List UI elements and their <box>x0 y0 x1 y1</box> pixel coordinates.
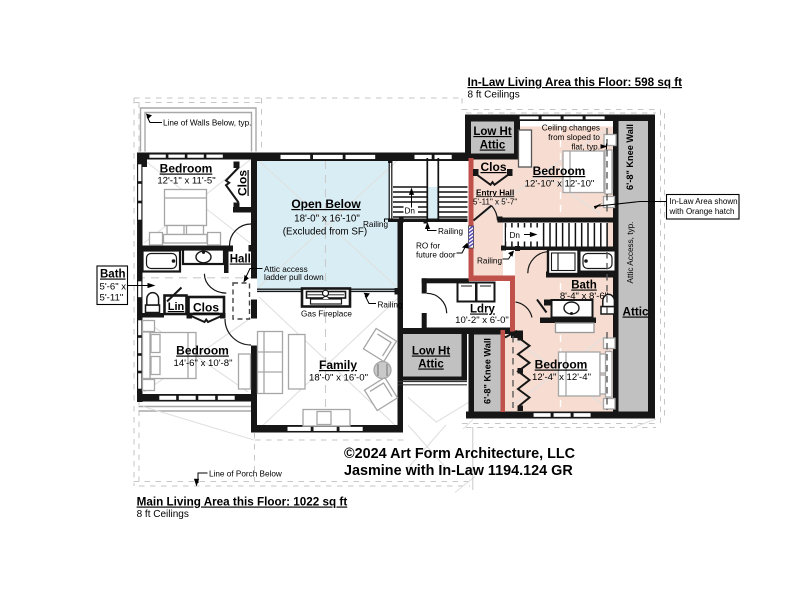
svg-text:5'-11" x 5'-7": 5'-11" x 5'-7" <box>473 197 517 206</box>
svg-text:Railing: Railing <box>378 301 403 310</box>
svg-text:Bedroom: Bedroom <box>160 162 213 176</box>
svg-text:Clos: Clos <box>480 160 506 174</box>
svg-text:6'-8" Knee Wall: 6'-8" Knee Wall <box>483 338 493 404</box>
svg-text:5'-6" x: 5'-6" x <box>100 282 127 293</box>
svg-text:Clos: Clos <box>236 170 250 196</box>
svg-text:Dn: Dn <box>510 231 521 240</box>
svg-text:Clos: Clos <box>193 301 219 315</box>
svg-text:In-Law Living Area this Floor:: In-Law Living Area this Floor: 598 sq ft <box>468 76 683 89</box>
svg-text:with Orange hatch: with Orange hatch <box>669 207 735 216</box>
svg-text:Hall: Hall <box>230 254 251 266</box>
svg-text:18'-0" x 16'-0": 18'-0" x 16'-0" <box>309 373 368 384</box>
svg-text:Jasmine with In-Law 1194.124 G: Jasmine with In-Law 1194.124 GR <box>344 463 573 479</box>
svg-text:In-Law Area shown: In-Law Area shown <box>670 197 738 206</box>
svg-text:6'-8" Knee Wall: 6'-8" Knee Wall <box>625 124 635 190</box>
svg-text:flat, typ.: flat, typ. <box>571 143 600 152</box>
svg-text:Low Ht: Low Ht <box>473 126 511 138</box>
svg-text:Bedroom: Bedroom <box>533 164 586 178</box>
svg-text:10'-2" x 6'-0": 10'-2" x 6'-0" <box>455 315 509 326</box>
svg-text:Low Ht: Low Ht <box>412 346 450 358</box>
svg-text:Ceiling changes: Ceiling changes <box>542 124 600 133</box>
svg-text:18'-0" x 16'-10": 18'-0" x 16'-10" <box>294 214 360 225</box>
svg-text:Open Below: Open Below <box>291 197 361 211</box>
svg-text:Dn: Dn <box>405 207 416 216</box>
svg-text:Line of Porch Below: Line of Porch Below <box>209 470 282 479</box>
svg-text:Line of Walls Below, typ.: Line of Walls Below, typ. <box>163 119 251 128</box>
svg-text:8'-4" x 8'-6": 8'-4" x 8'-6" <box>560 291 608 302</box>
svg-text:Entry Hall: Entry Hall <box>476 188 514 197</box>
svg-text:(Excluded from SF): (Excluded from SF) <box>283 227 367 238</box>
svg-text:Bath: Bath <box>100 269 126 281</box>
svg-text:Bedroom: Bedroom <box>176 344 229 358</box>
svg-text:Ldry: Ldry <box>470 304 496 316</box>
svg-text:ladder pull down: ladder pull down <box>264 273 324 282</box>
svg-text:12'-1" x 11'-5": 12'-1" x 11'-5" <box>157 176 215 187</box>
svg-text:RO for: RO for <box>416 241 440 250</box>
svg-text:Railing: Railing <box>438 227 463 236</box>
svg-text:Attic: Attic <box>623 306 649 319</box>
svg-text:©2024 Art Form Architecture, L: ©2024 Art Form Architecture, LLC <box>344 446 575 462</box>
svg-text:Attic Access, typ.: Attic Access, typ. <box>626 222 635 284</box>
svg-text:Main Living Area this Floor: 1: Main Living Area this Floor: 1022 sq ft <box>137 496 348 509</box>
svg-text:14'-6" x 10'-8": 14'-6" x 10'-8" <box>173 358 232 369</box>
svg-text:8 ft Ceilings: 8 ft Ceilings <box>137 509 189 520</box>
svg-text:Bath: Bath <box>571 280 597 292</box>
svg-text:Lin: Lin <box>168 301 185 313</box>
svg-text:12'-4" x 12'-4": 12'-4" x 12'-4" <box>532 372 591 383</box>
svg-text:Gas Fireplace: Gas Fireplace <box>301 310 352 319</box>
svg-text:5'-11": 5'-11" <box>100 293 124 304</box>
svg-text:Railing: Railing <box>477 257 502 266</box>
svg-text:12'-10" x 12'-10": 12'-10" x 12'-10" <box>525 179 595 190</box>
svg-text:8 ft Ceilings: 8 ft Ceilings <box>468 90 520 101</box>
svg-text:from sloped to: from sloped to <box>548 133 600 142</box>
svg-text:future door: future door <box>416 250 456 259</box>
svg-text:Attic: Attic <box>418 359 444 371</box>
svg-text:Bedroom: Bedroom <box>535 358 588 372</box>
svg-text:Attic: Attic <box>480 140 506 152</box>
svg-text:Family: Family <box>319 358 357 372</box>
